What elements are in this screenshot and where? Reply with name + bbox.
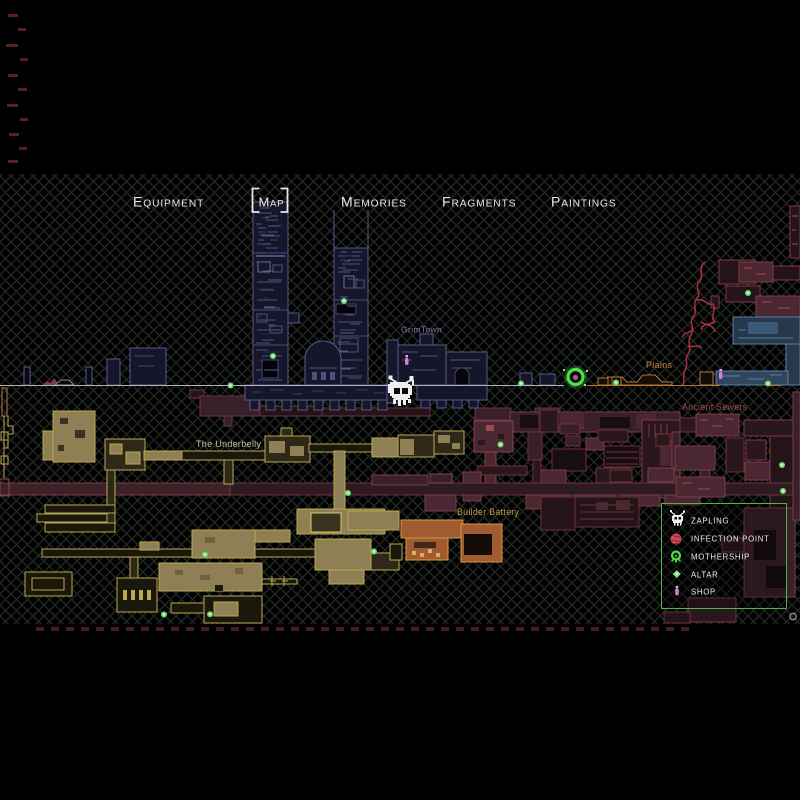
svg-text:ZAPLING: ZAPLING [691, 517, 729, 526]
svg-text:The Underbelly: The Underbelly [196, 439, 261, 449]
svg-text:SHOP: SHOP [691, 588, 716, 597]
svg-text:Plains: Plains [646, 360, 673, 370]
svg-text:GrimTown: GrimTown [401, 325, 442, 335]
svg-text:MOTHERSHIP: MOTHERSHIP [691, 553, 750, 562]
svg-text:Ancient Sewers: Ancient Sewers [682, 402, 748, 412]
svg-text:ALTAR: ALTAR [691, 571, 718, 580]
svg-text:Builder Battery: Builder Battery [457, 507, 519, 517]
svg-text:INFECTION POINT: INFECTION POINT [691, 535, 770, 544]
